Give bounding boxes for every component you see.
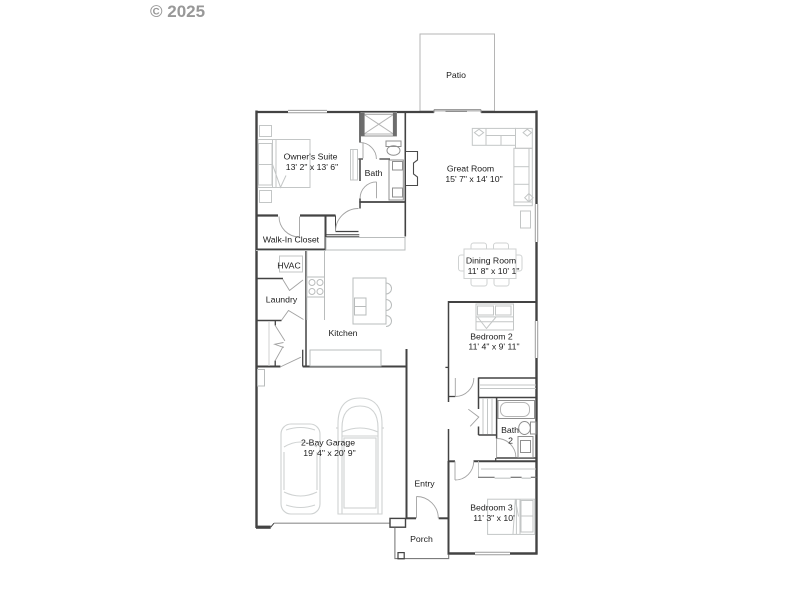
svg-text:15' 7" x 14' 10": 15' 7" x 14' 10"	[445, 174, 502, 184]
svg-text:11' 4" x 9' 11": 11' 4" x 9' 11"	[468, 342, 519, 352]
svg-text:Patio: Patio	[446, 70, 466, 80]
svg-text:11' 3" x 10': 11' 3" x 10'	[473, 513, 515, 523]
svg-text:Porch: Porch	[410, 534, 433, 544]
svg-text:Dining Room: Dining Room	[466, 256, 516, 266]
svg-text:HVAC: HVAC	[277, 261, 301, 271]
svg-text:2: 2	[508, 436, 513, 446]
svg-text:Entry: Entry	[414, 479, 435, 489]
svg-text:Owner's Suite: Owner's Suite	[284, 152, 338, 162]
svg-text:13' 2" x 13' 6": 13' 2" x 13' 6"	[286, 162, 338, 172]
svg-text:11' 8" x 10' 1": 11' 8" x 10' 1"	[468, 266, 520, 276]
svg-text:2-Bay Garage: 2-Bay Garage	[301, 438, 355, 448]
svg-text:Bath: Bath	[365, 168, 383, 178]
svg-text:Walk-In Closet: Walk-In Closet	[263, 235, 320, 245]
svg-text:Bedroom 3: Bedroom 3	[470, 503, 513, 513]
svg-text:Laundry: Laundry	[266, 295, 298, 305]
svg-text:19' 4" x 20' 9": 19' 4" x 20' 9"	[303, 448, 355, 458]
svg-text:Kitchen: Kitchen	[329, 328, 358, 338]
svg-text:Bedroom 2: Bedroom 2	[470, 332, 513, 342]
svg-text:Great Room: Great Room	[447, 164, 494, 174]
svg-text:© 2025: © 2025	[150, 2, 205, 21]
svg-text:Bath: Bath	[501, 425, 519, 435]
